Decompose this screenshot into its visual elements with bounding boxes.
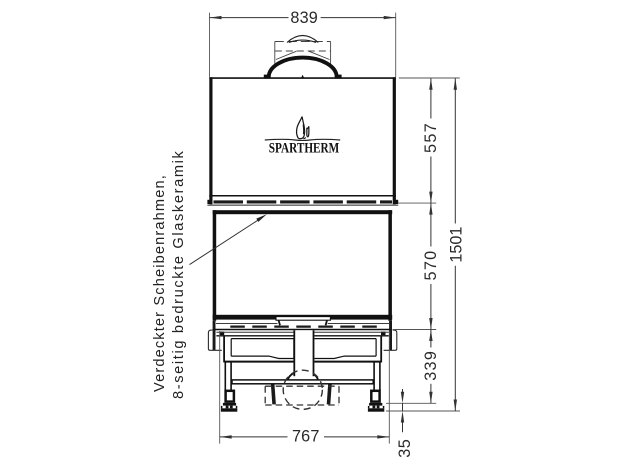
svg-text:570: 570 — [422, 250, 440, 281]
svg-text:339: 339 — [422, 350, 440, 381]
svg-text:767: 767 — [292, 427, 320, 445]
svg-text:Verdeckter Scheibenrahmen,: Verdeckter Scheibenrahmen, — [152, 174, 168, 392]
svg-text:8-seitig bedruckte Glaskeramik: 8-seitig bedruckte Glaskeramik — [171, 150, 187, 399]
svg-text:SPARTHERM: SPARTHERM — [269, 141, 340, 157]
svg-text:1501: 1501 — [448, 227, 466, 263]
svg-text:839: 839 — [290, 9, 318, 27]
svg-text:557: 557 — [422, 122, 440, 153]
svg-text:35: 35 — [396, 439, 414, 458]
